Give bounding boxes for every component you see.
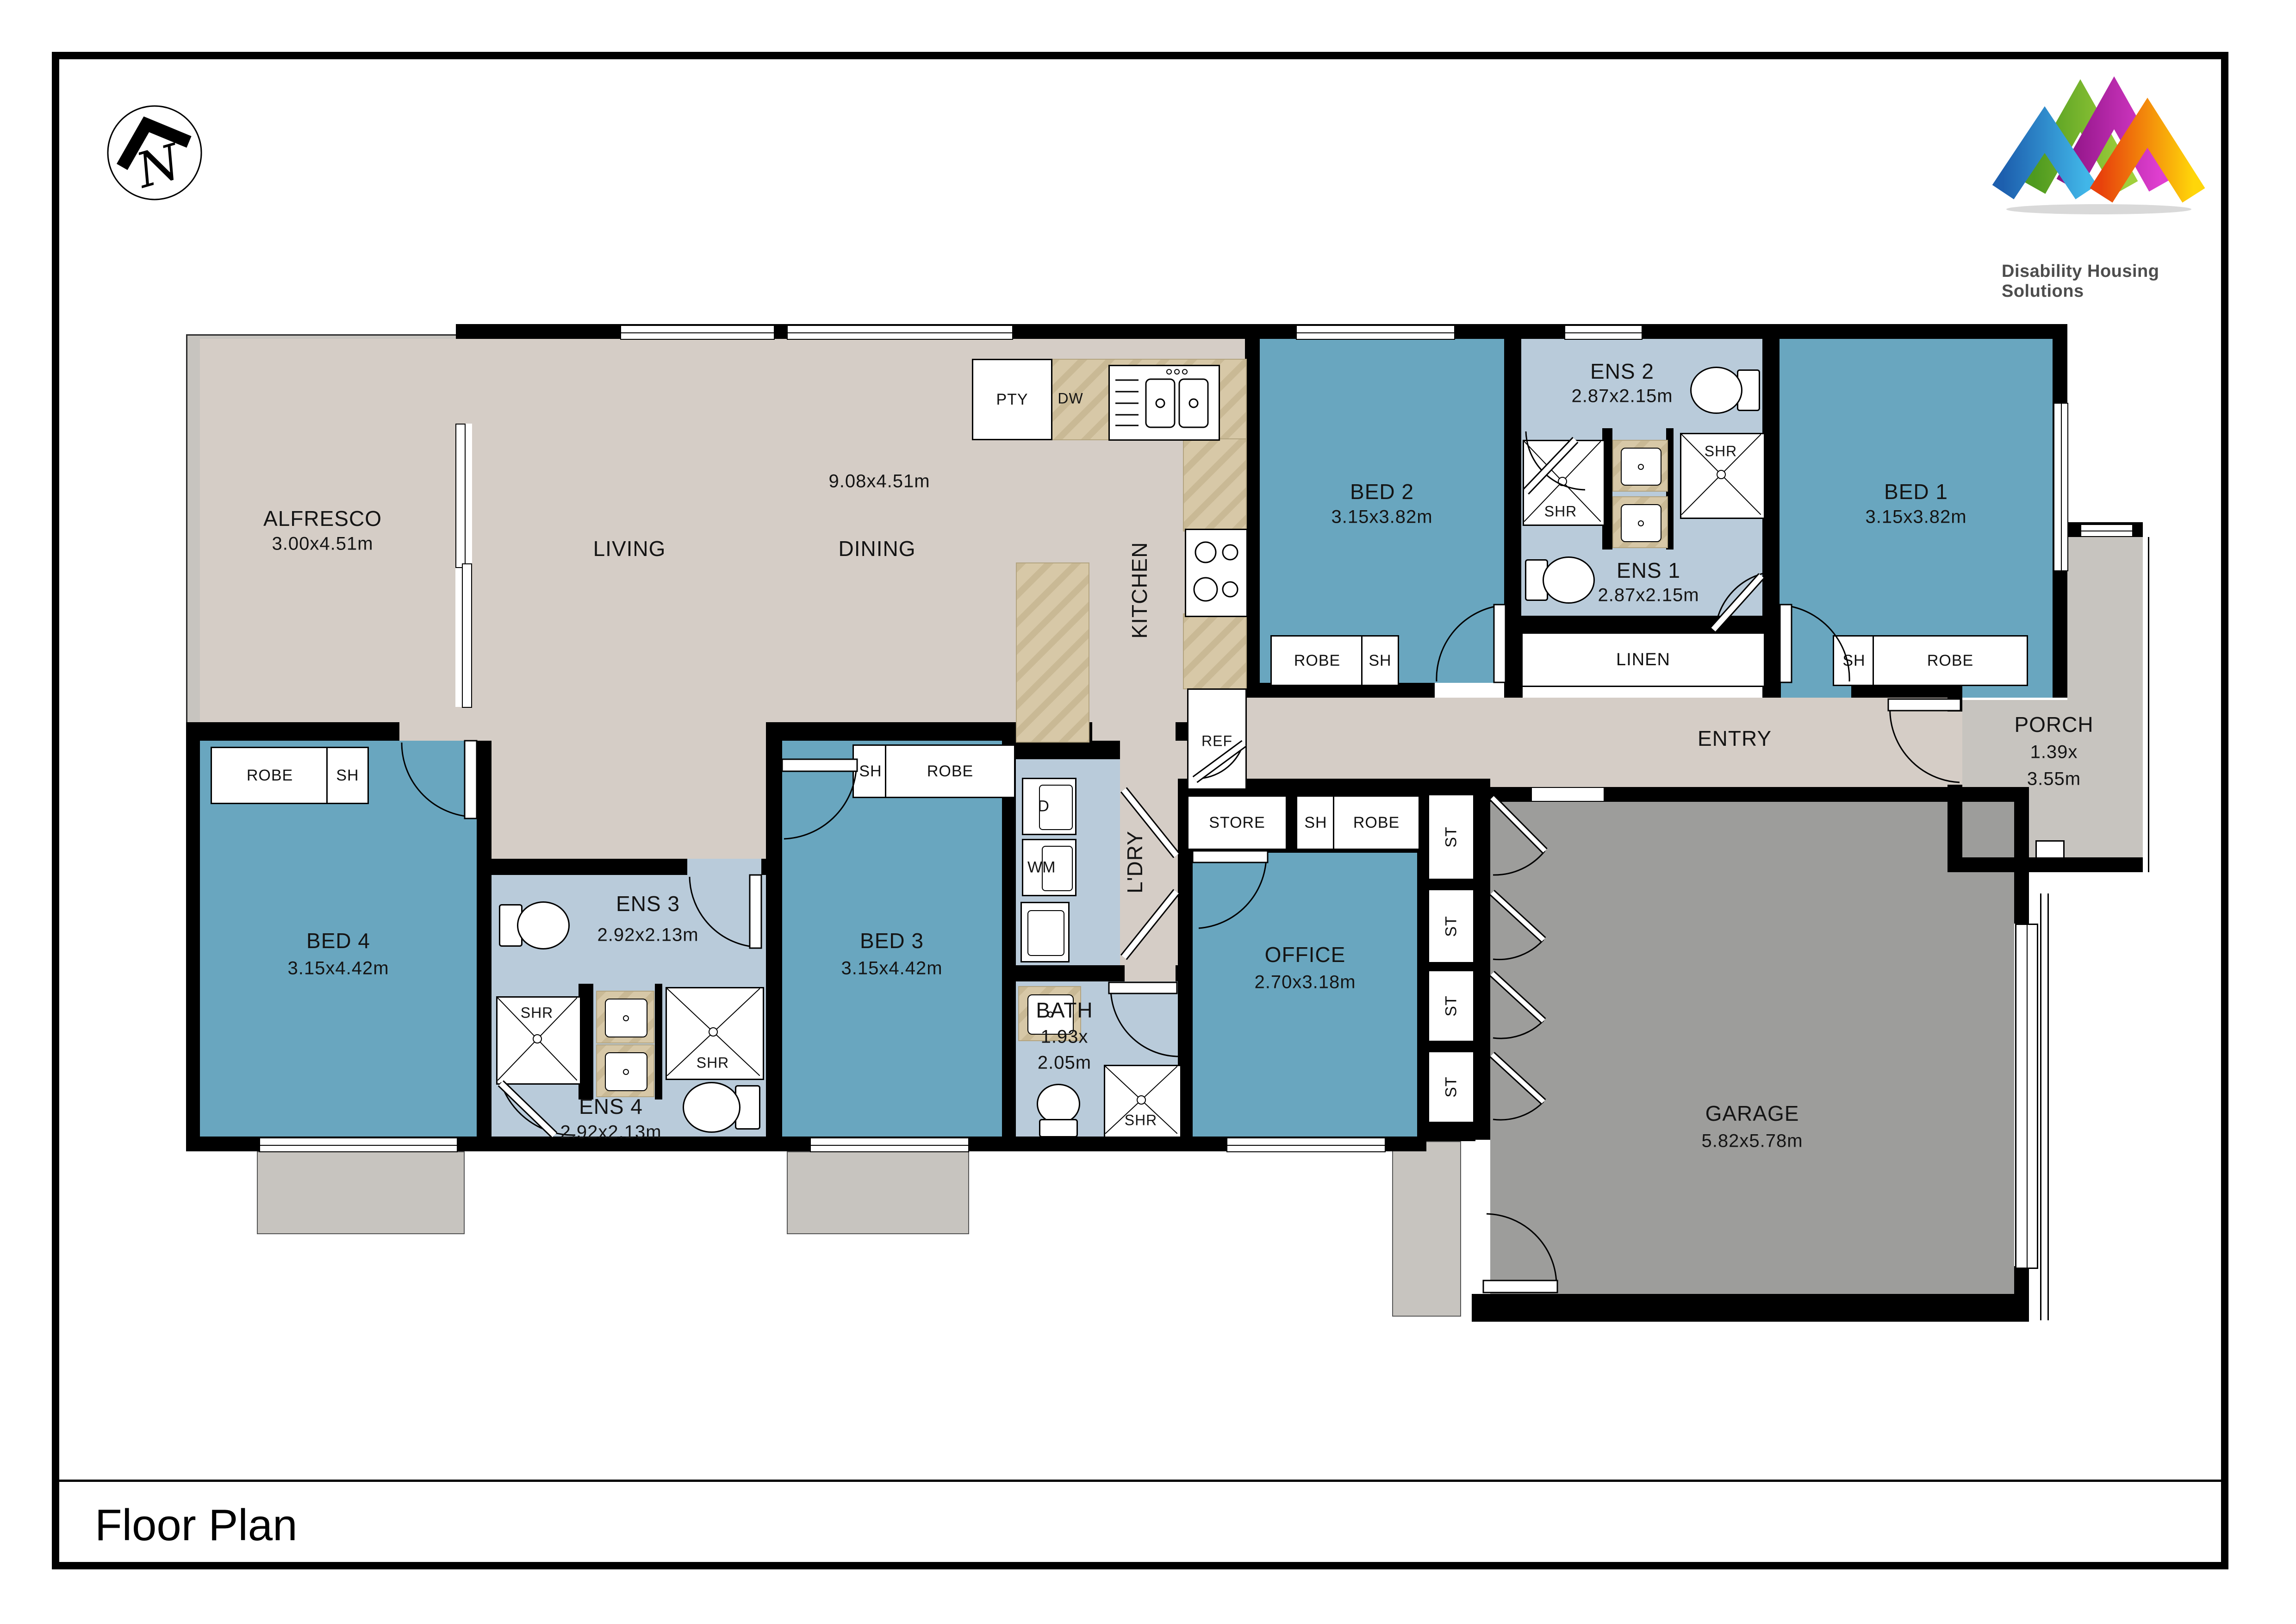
office-dims: 2.70x3.18m — [1254, 972, 1356, 993]
ens1-label: ENS 1 — [1617, 558, 1680, 583]
ldry-label: L'DRY — [1122, 831, 1147, 893]
ens1-dims: 2.87x2.15m — [1598, 585, 1699, 606]
living-label: LIVING — [593, 536, 666, 561]
office-label: OFFICE — [1265, 942, 1346, 967]
ens2-dims: 2.87x2.15m — [1571, 386, 1673, 407]
ens3-dims: 2.92x2.13m — [597, 925, 698, 946]
porch-dims2: 3.55m — [2027, 769, 2081, 790]
living-dining-dims: 9.08x4.51m — [828, 471, 930, 492]
garage-label: GARAGE — [1705, 1101, 1799, 1126]
ens2-label: ENS 2 — [1590, 359, 1654, 384]
bed4-dims: 3.15x4.42m — [287, 958, 389, 979]
door-arcs-layer — [0, 0, 2296, 1624]
bed1-label: BED 1 — [1884, 479, 1948, 504]
bed2-dims: 3.15x3.82m — [1331, 507, 1432, 528]
ens2-shr-label: SHR — [1705, 443, 1737, 460]
ens3-shr-label: SHR — [521, 1005, 554, 1022]
ens4-shr-label: SHR — [697, 1055, 729, 1072]
bed4-label: BED 4 — [306, 928, 370, 953]
ens4-label: ENS 4 — [579, 1094, 643, 1119]
kitchen-label: KITCHEN — [1127, 542, 1152, 639]
entry-label: ENTRY — [1698, 726, 1772, 751]
bath-dims1: 1.93x — [1041, 1027, 1089, 1048]
bed1-dims: 3.15x3.82m — [1865, 507, 1966, 528]
bed3-dims: 3.15x4.42m — [841, 958, 942, 979]
ens3-label: ENS 3 — [616, 891, 680, 916]
floor-plan-page: Floor Plan N Disability Housing Sol — [0, 0, 2296, 1624]
alfresco-dims: 3.00x4.51m — [272, 534, 373, 555]
bath-label: BATH — [1036, 998, 1093, 1023]
garage-dims: 5.82x5.78m — [1701, 1131, 1803, 1152]
bath-shr-label: SHR — [1125, 1112, 1157, 1129]
porch-dims1: 1.39x — [2030, 742, 2078, 763]
ens1-shr-label: SHR — [1544, 503, 1577, 520]
ens4-dims: 2.92x2.13m — [560, 1122, 661, 1143]
dining-label: DINING — [839, 536, 916, 561]
bed3-label: BED 3 — [860, 928, 924, 953]
alfresco-label: ALFRESCO — [263, 506, 382, 531]
porch-label: PORCH — [2014, 712, 2093, 737]
bed2-label: BED 2 — [1350, 479, 1414, 504]
bath-dims2: 2.05m — [1038, 1053, 1091, 1074]
